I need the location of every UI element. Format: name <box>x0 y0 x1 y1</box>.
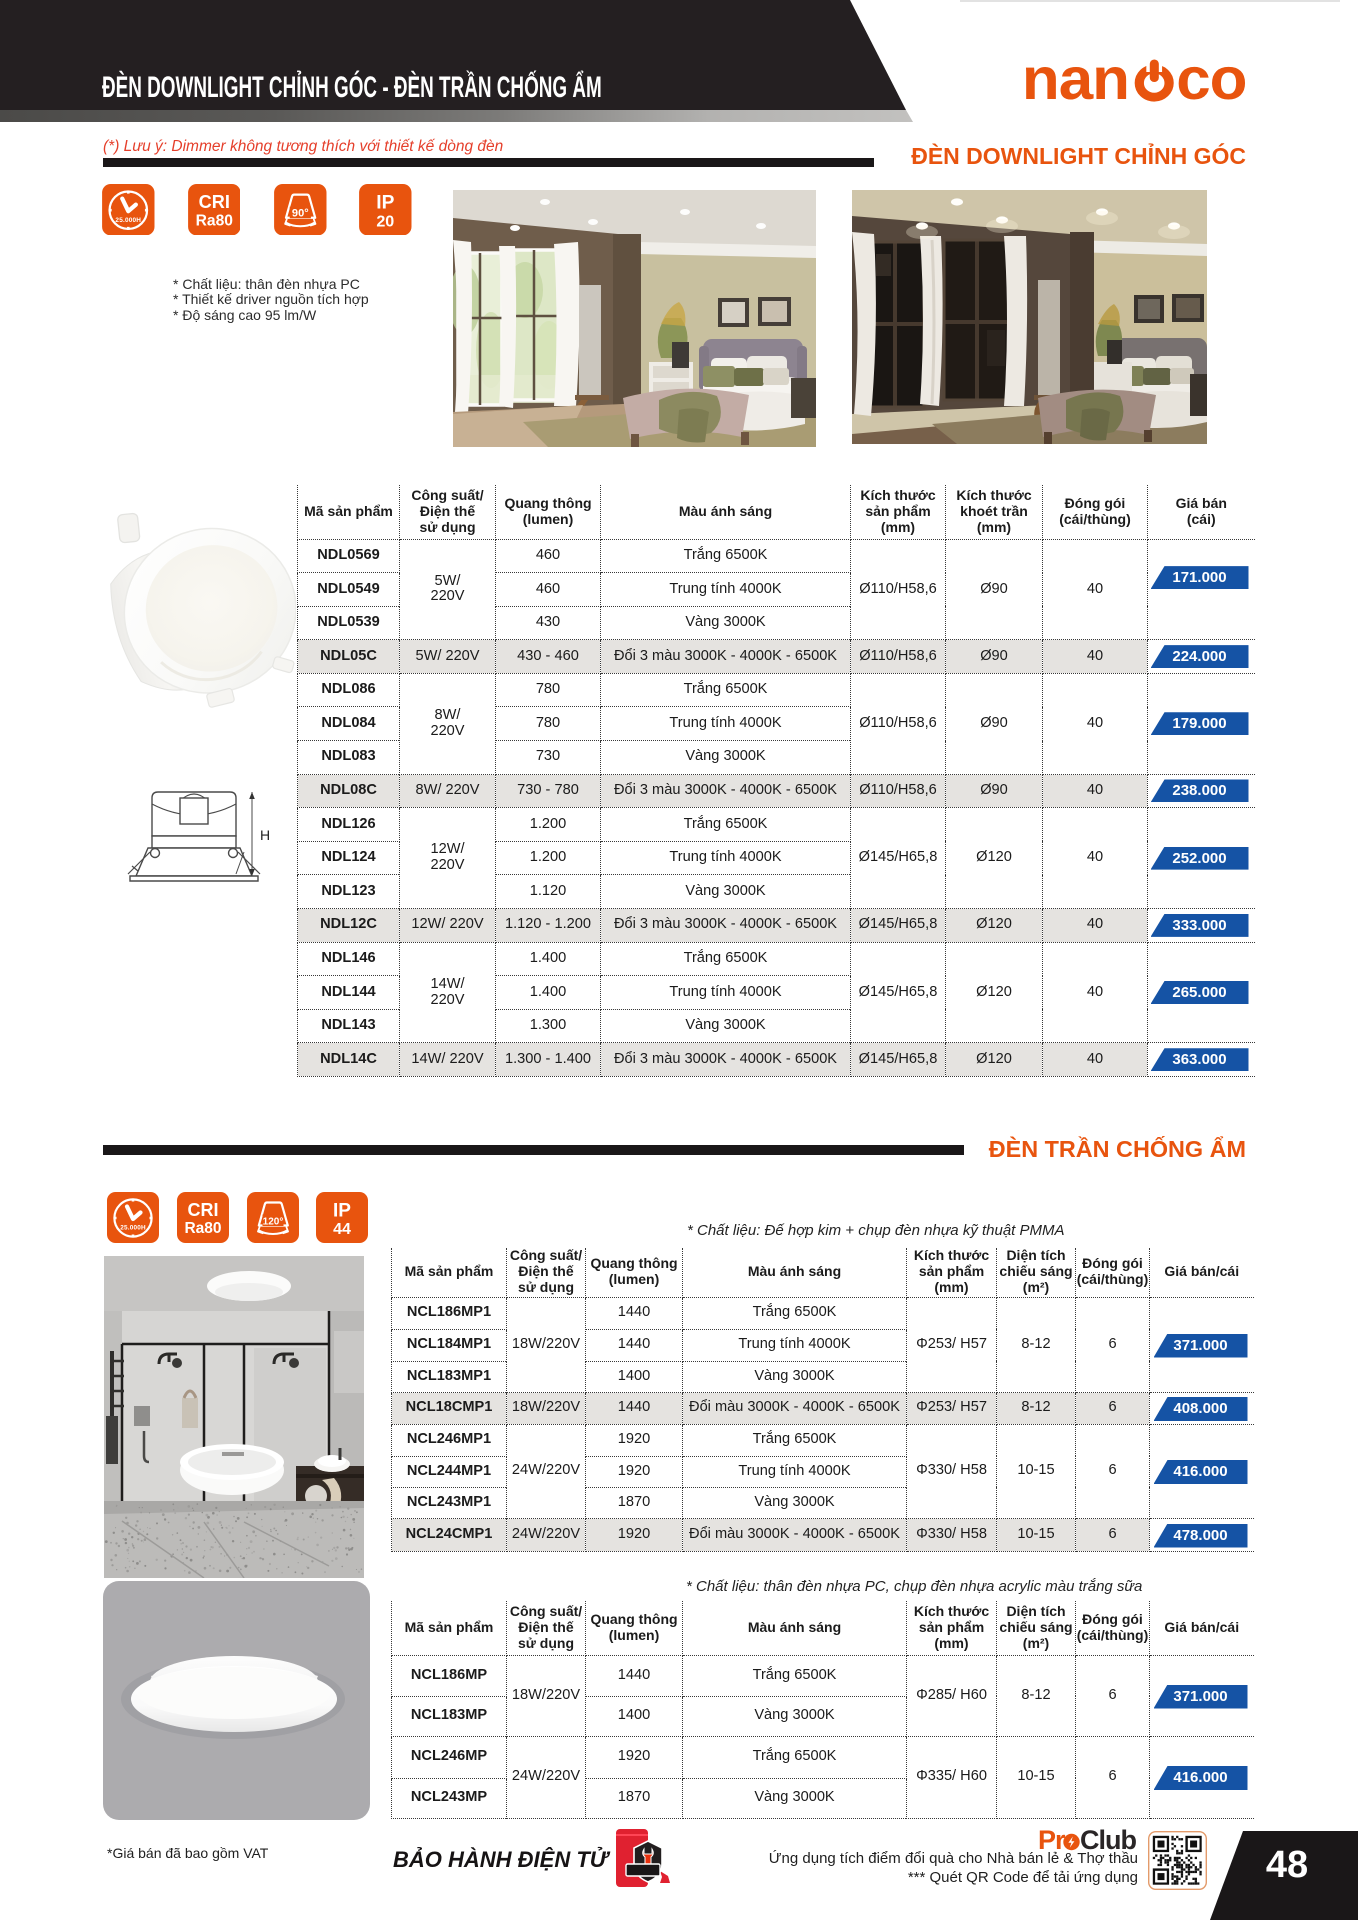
svg-text:IP: IP <box>376 193 394 214</box>
svg-text:IP: IP <box>333 1201 351 1222</box>
svg-text:20: 20 <box>376 212 394 230</box>
svg-text:Pr: Pr <box>1038 1828 1066 1854</box>
svg-text:Club: Club <box>1080 1828 1136 1854</box>
svg-text:co: co <box>1176 58 1246 104</box>
svg-text:H: H <box>260 827 270 843</box>
svg-text:Ra80: Ra80 <box>195 212 233 229</box>
svg-text:25.000H: 25.000H <box>115 217 141 224</box>
svg-text:25.000H: 25.000H <box>120 1225 146 1232</box>
svg-text:nan: nan <box>1024 58 1129 104</box>
svg-text:90°: 90° <box>292 208 309 220</box>
svg-text:CRI: CRI <box>187 1200 218 1220</box>
svg-text:CRI: CRI <box>198 192 229 212</box>
svg-text:44: 44 <box>333 1221 351 1238</box>
svg-text:120°: 120° <box>263 1217 284 1228</box>
svg-text:Ra80: Ra80 <box>184 1220 221 1237</box>
